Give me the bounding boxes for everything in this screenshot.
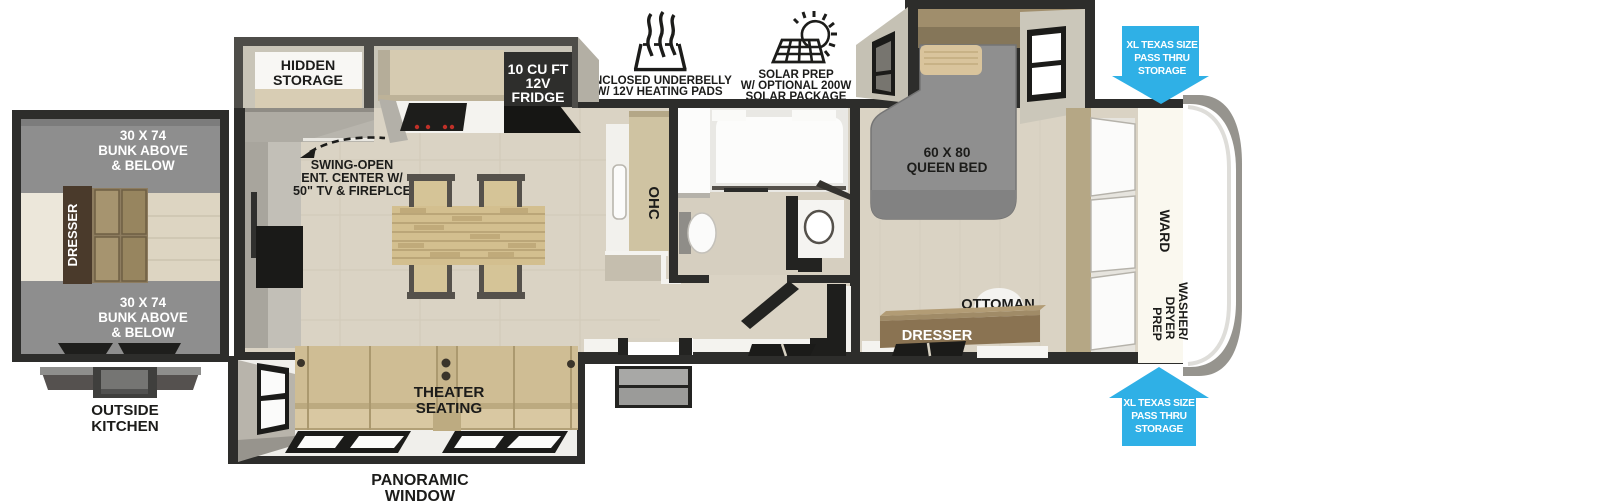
svg-text:STORAGE: STORAGE xyxy=(1135,424,1184,435)
svg-text:WINDOW: WINDOW xyxy=(385,488,456,501)
svg-text:30 X 74: 30 X 74 xyxy=(120,128,167,143)
svg-text:OUTSIDE: OUTSIDE xyxy=(91,402,159,419)
svg-text:PANORAMIC: PANORAMIC xyxy=(371,472,469,489)
svg-text:60 X 80: 60 X 80 xyxy=(924,145,971,160)
svg-text:STORAGE: STORAGE xyxy=(273,73,343,89)
svg-text:PASS THRU: PASS THRU xyxy=(1134,53,1189,64)
svg-text:PASS THRU: PASS THRU xyxy=(1131,411,1186,422)
svg-text:BUNK ABOVE: BUNK ABOVE xyxy=(98,143,188,158)
svg-text:DRYER: DRYER xyxy=(1163,297,1177,340)
svg-text:SWING-OPEN: SWING-OPEN xyxy=(311,158,394,172)
svg-text:& BELOW: & BELOW xyxy=(111,325,175,340)
svg-text:FRIDGE: FRIDGE xyxy=(512,89,565,105)
svg-text:XL TEXAS SIZE: XL TEXAS SIZE xyxy=(1126,40,1198,51)
svg-text:WASHER/: WASHER/ xyxy=(1176,282,1190,340)
svg-text:30 X 74: 30 X 74 xyxy=(120,295,167,310)
svg-text:SEATING: SEATING xyxy=(416,400,482,417)
svg-text:50" TV & FIREPLCE: 50" TV & FIREPLCE xyxy=(293,184,411,198)
svg-text:HIDDEN: HIDDEN xyxy=(281,58,335,74)
svg-text:OHC: OHC xyxy=(645,186,662,220)
svg-text:KITCHEN: KITCHEN xyxy=(91,418,159,435)
svg-text:STORAGE: STORAGE xyxy=(1138,66,1187,77)
svg-text:XL TEXAS SIZE: XL TEXAS SIZE xyxy=(1123,398,1195,409)
svg-text:WARD: WARD xyxy=(1157,210,1173,253)
svg-text:THEATER: THEATER xyxy=(414,384,485,401)
svg-text:PREP: PREP xyxy=(1150,307,1164,341)
svg-text:& BELOW: & BELOW xyxy=(111,158,175,173)
svg-text:DRESSER: DRESSER xyxy=(65,203,80,266)
svg-text:QUEEN BED: QUEEN BED xyxy=(907,160,988,175)
svg-text:ENT. CENTER W/: ENT. CENTER W/ xyxy=(301,171,403,185)
svg-text:BUNK ABOVE: BUNK ABOVE xyxy=(98,310,188,325)
svg-text:W/ 12V HEATING PADS: W/ 12V HEATING PADS xyxy=(595,85,722,98)
